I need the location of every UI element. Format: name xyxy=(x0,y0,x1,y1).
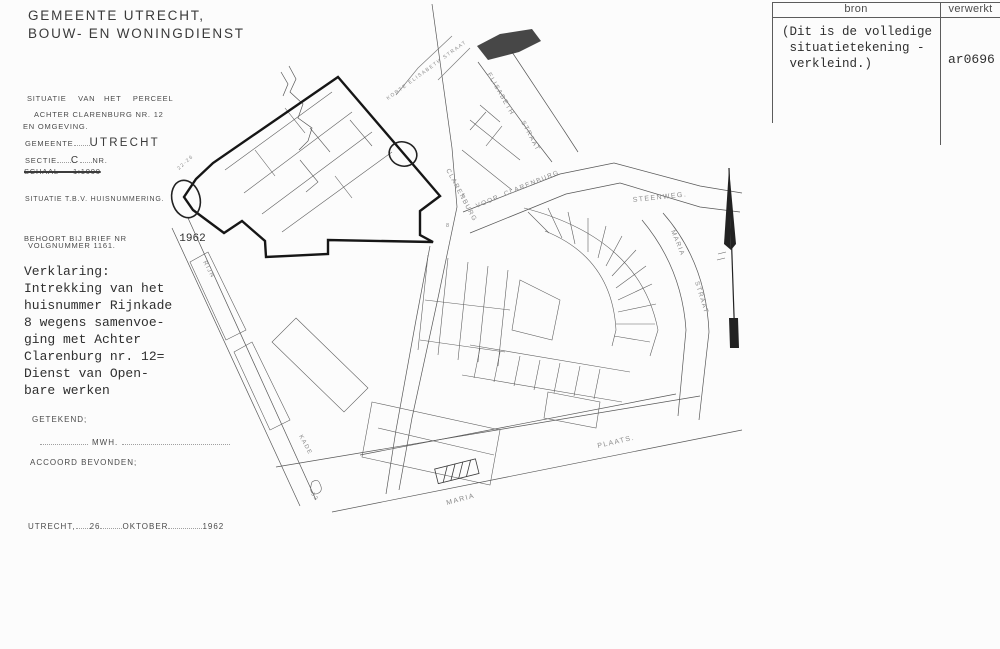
street-label: ELISABETH xyxy=(485,72,515,117)
street-label: PLAATS. xyxy=(597,435,636,450)
street-label: MARIA xyxy=(446,493,476,507)
street-label: STRAAT xyxy=(693,281,710,315)
street-label: CLARENBURG xyxy=(503,169,560,198)
street-label: KADE xyxy=(297,434,313,456)
street-label: VOOR xyxy=(475,194,501,210)
street-label: MARIA xyxy=(669,229,686,257)
map-street-lines xyxy=(172,4,742,512)
situation-map: CLARENBURG VOOR CLARENBURG ELISABETH STR… xyxy=(0,0,1000,649)
map-building-lines xyxy=(190,92,726,494)
scanned-situation-drawing: GEMEENTE UTRECHT, BOUW- EN WONINGDIENST … xyxy=(0,0,1000,649)
street-label: STEENWEG. xyxy=(632,191,687,204)
parcel-heavy-outline xyxy=(184,77,440,257)
hatched-building-blob xyxy=(477,29,541,60)
spire-mark xyxy=(724,168,739,348)
small-hatched-building xyxy=(435,459,479,484)
house-number-label: 8 xyxy=(446,223,450,229)
house-number-label: 22-26 xyxy=(176,154,195,172)
street-label: STRAAT xyxy=(519,120,541,153)
house-number-label: 6 xyxy=(462,193,466,199)
street-label: KORTE ELISABETH STRAAT xyxy=(386,39,468,101)
